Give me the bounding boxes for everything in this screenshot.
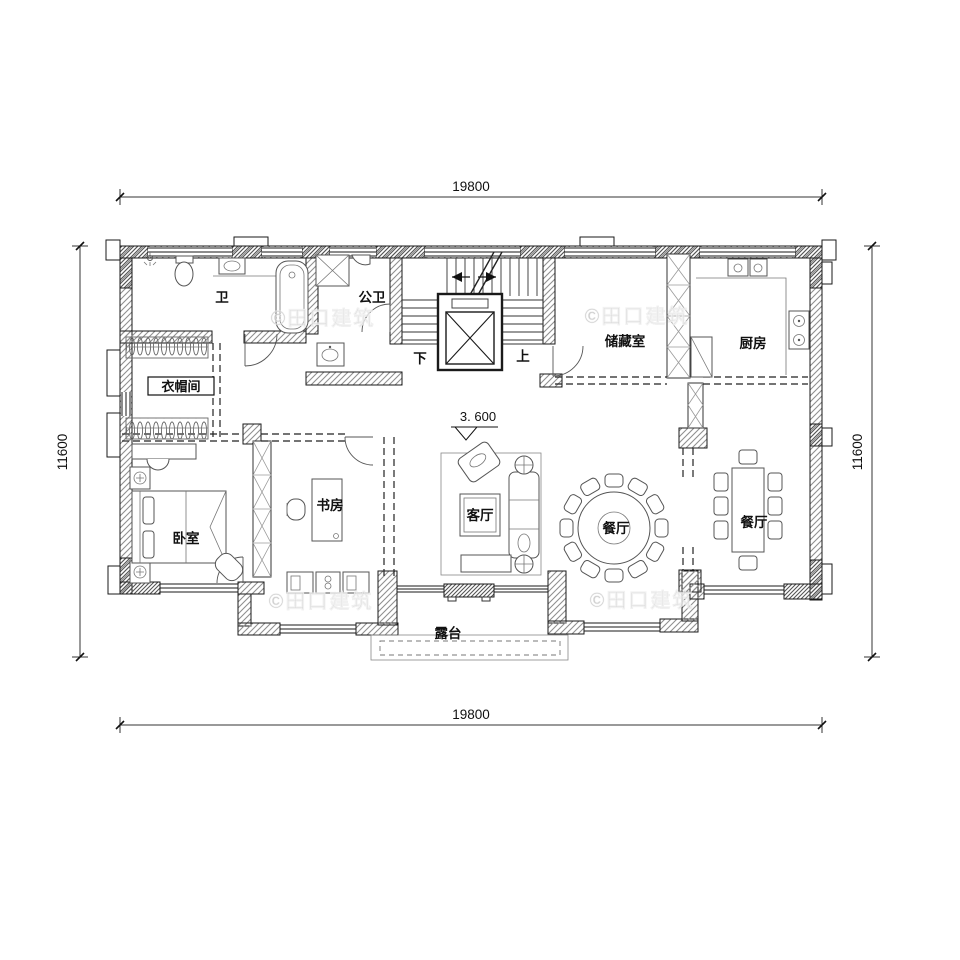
hanger-rail [126,418,208,439]
cabinet [287,572,313,593]
nightstand [130,561,150,583]
kitchen-sink [728,259,767,276]
side-table [515,456,533,474]
wall-pier [376,246,425,258]
side-table [515,555,533,573]
column [679,428,707,448]
window-bedroom-south [160,584,238,592]
label-cloakroom: 衣帽间 [161,379,200,394]
hanger-rail [126,337,208,358]
elevator [438,294,502,370]
label-public-bath: 公卫 [359,290,386,305]
label-living: 客厅 [466,507,494,523]
window-study-south [280,625,356,633]
study-furniture [287,479,369,593]
terrace-platform [371,635,568,660]
bed [132,491,226,563]
label-bath: 卫 [215,290,229,305]
stair-down-label: 下 [413,351,427,366]
window-left [121,392,131,416]
label-study: 书房 [317,497,344,513]
watermark-text: ©田口建筑 [269,589,374,613]
terrace-wall-left [378,571,397,625]
terrace-platform-inner [380,641,560,655]
label-bedroom: 卧室 [173,530,200,546]
terrace [371,584,568,660]
desk-chair [287,499,305,520]
wall-seg [238,582,264,594]
floor-plan-svg: 19800 19800 11600 11600 [0,0,960,960]
door-stairhall [553,346,583,376]
label-cloakroom-box: 衣帽间 [148,377,214,395]
window-dining-south [704,586,784,594]
window-diningbay-south [584,623,660,631]
wall-pier [520,246,565,258]
terrace-wall-right [548,571,566,623]
bath-sink [219,258,245,274]
shower-stall [316,255,349,286]
column [679,570,701,592]
tv-cabinet [461,555,511,572]
label-storage: 储藏室 [604,333,646,349]
dim-top-value: 19800 [452,179,490,194]
wall-seg [238,594,251,626]
dim-left-value: 11600 [55,434,70,471]
label-terrace: 露台 [435,625,462,641]
vanity-sink [317,343,344,366]
dimension-top: 19800 [116,179,826,205]
cabinet [343,572,369,593]
floor-plan-page: 19800 19800 11600 11600 [0,0,960,960]
door-study [345,437,373,465]
shaft-dining-west [688,383,703,428]
kitchen-fittings [691,259,809,377]
elevation-triangle-icon [455,427,477,440]
fridge [691,337,712,377]
wall-pier [795,246,822,258]
elevation-marker: 3. 600 [451,409,498,440]
toilet [175,256,193,286]
dining-table [732,468,764,552]
dim-right-value: 11600 [850,434,865,471]
sofa [509,472,539,558]
dresser [132,444,196,470]
wall-pier [232,246,262,258]
watermark-text: ©田口建筑 [590,588,695,612]
shaft-bedroom-study [253,441,271,577]
wall-seg [784,584,822,599]
terrace-bench [444,584,494,601]
watermark-text: ©田口建筑 [585,304,690,328]
stove [789,311,809,349]
label-kitchen: 厨房 [740,335,767,351]
nightstand [130,467,150,489]
rect-dining-set [714,450,782,570]
wall-stair-east [543,258,555,344]
corner-basin [352,255,370,265]
wall-bedroom-south [120,582,160,594]
wall-study-south [238,623,280,635]
label-dining-round: 餐厅 [602,520,631,536]
armchair [456,440,502,484]
label-dining: 餐厅 [740,514,769,530]
cabinet [316,572,340,593]
wall-seg [548,621,584,634]
wall-pier [810,258,822,288]
bedroom-furniture [130,444,246,584]
dimension-right: 11600 [850,242,880,661]
staircase: 下 上 [402,252,543,370]
wall-pubbath-south [306,372,402,385]
wall-pier [810,424,822,446]
wall-pier [120,246,148,258]
dimension-left: 11600 [55,242,88,661]
elevation-value: 3. 600 [460,409,496,424]
watermark-text: ©田口建筑 [271,306,376,330]
wall-stair-west [390,258,402,344]
dimension-bottom: 19800 [116,707,826,733]
stair-up-label: 上 [516,349,530,364]
dim-bottom-value: 19800 [452,707,490,722]
wall-pier [120,258,132,288]
